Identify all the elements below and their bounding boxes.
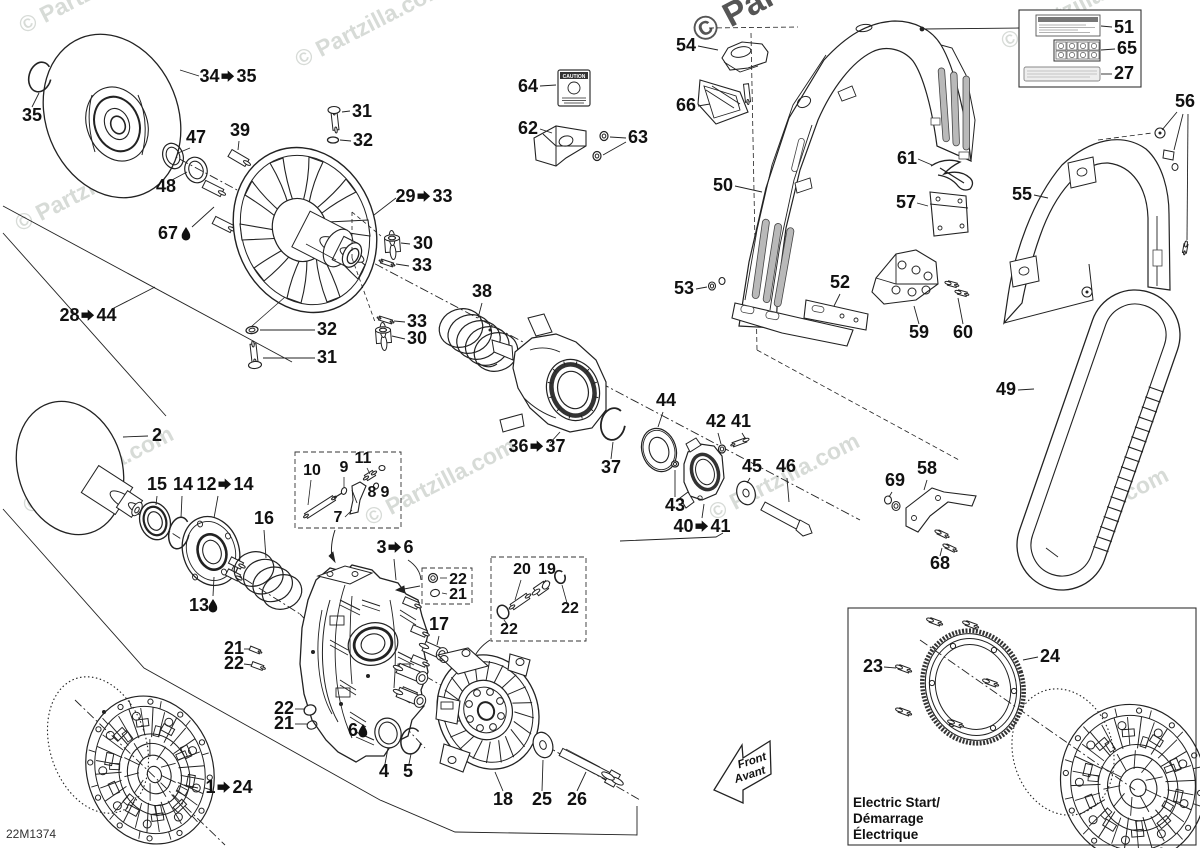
svg-text:30: 30 xyxy=(407,328,427,348)
svg-text:49: 49 xyxy=(996,379,1016,399)
svg-text:51: 51 xyxy=(1114,17,1134,37)
svg-text:64: 64 xyxy=(518,76,538,96)
svg-text:Démarrage: Démarrage xyxy=(853,811,924,826)
svg-text:9: 9 xyxy=(381,484,390,501)
svg-text:35: 35 xyxy=(237,66,257,86)
svg-text:25: 25 xyxy=(532,789,552,809)
svg-text:1: 1 xyxy=(206,777,216,797)
svg-text:21: 21 xyxy=(274,713,294,733)
svg-text:62: 62 xyxy=(518,118,538,138)
svg-text:56: 56 xyxy=(1175,91,1195,111)
svg-text:32: 32 xyxy=(353,130,373,150)
svg-text:39: 39 xyxy=(230,120,250,140)
svg-text:11: 11 xyxy=(355,450,372,467)
svg-text:32: 32 xyxy=(317,319,337,339)
svg-text:24: 24 xyxy=(1040,646,1060,666)
svg-text:6: 6 xyxy=(404,537,414,557)
svg-text:43: 43 xyxy=(665,495,685,515)
svg-text:5: 5 xyxy=(403,761,413,781)
svg-text:14: 14 xyxy=(234,474,254,494)
svg-text:6: 6 xyxy=(348,720,358,740)
svg-text:13: 13 xyxy=(189,595,209,615)
svg-text:27: 27 xyxy=(1114,63,1134,83)
svg-text:9: 9 xyxy=(340,459,349,476)
svg-text:69: 69 xyxy=(885,470,905,490)
svg-text:58: 58 xyxy=(917,458,937,478)
svg-text:17: 17 xyxy=(429,614,449,634)
svg-text:54: 54 xyxy=(676,35,696,55)
svg-text:29: 29 xyxy=(396,186,416,206)
svg-text:30: 30 xyxy=(413,233,433,253)
svg-text:33: 33 xyxy=(433,186,453,206)
svg-text:28: 28 xyxy=(60,305,80,325)
svg-text:34: 34 xyxy=(200,66,220,86)
svg-text:59: 59 xyxy=(909,322,929,342)
svg-text:50: 50 xyxy=(713,175,733,195)
svg-text:35: 35 xyxy=(22,105,42,125)
svg-text:57: 57 xyxy=(896,192,916,212)
svg-text:22: 22 xyxy=(561,600,579,617)
svg-text:12: 12 xyxy=(197,474,217,494)
svg-text:53: 53 xyxy=(674,278,694,298)
svg-text:33: 33 xyxy=(412,255,432,275)
svg-text:42: 42 xyxy=(706,411,726,431)
svg-text:52: 52 xyxy=(830,272,850,292)
svg-text:31: 31 xyxy=(352,101,372,121)
svg-text:14: 14 xyxy=(173,474,193,494)
svg-text:46: 46 xyxy=(776,456,796,476)
svg-text:41: 41 xyxy=(711,516,731,536)
svg-text:Electric Start/: Electric Start/ xyxy=(853,795,940,810)
svg-text:Électrique: Électrique xyxy=(853,827,919,842)
svg-text:18: 18 xyxy=(493,789,513,809)
svg-text:36: 36 xyxy=(509,436,529,456)
svg-text:65: 65 xyxy=(1117,38,1137,58)
svg-text:24: 24 xyxy=(233,777,253,797)
svg-text:CAUTION: CAUTION xyxy=(563,74,586,80)
svg-text:7: 7 xyxy=(334,509,343,526)
svg-text:38: 38 xyxy=(472,281,492,301)
svg-text:3: 3 xyxy=(377,537,387,557)
svg-text:22M1374: 22M1374 xyxy=(6,827,56,841)
svg-text:23: 23 xyxy=(863,656,883,676)
svg-text:26: 26 xyxy=(567,789,587,809)
svg-text:55: 55 xyxy=(1012,184,1032,204)
svg-text:44: 44 xyxy=(656,390,676,410)
svg-text:16: 16 xyxy=(254,508,274,528)
svg-text:31: 31 xyxy=(317,347,337,367)
svg-text:20: 20 xyxy=(513,561,531,578)
svg-text:8: 8 xyxy=(368,484,377,501)
svg-text:41: 41 xyxy=(731,411,751,431)
svg-text:47: 47 xyxy=(186,127,206,147)
svg-text:19: 19 xyxy=(538,561,556,578)
svg-text:40: 40 xyxy=(674,516,694,536)
svg-text:66: 66 xyxy=(676,95,696,115)
svg-text:10: 10 xyxy=(303,462,321,479)
svg-text:15: 15 xyxy=(147,474,167,494)
svg-text:61: 61 xyxy=(897,148,917,168)
svg-text:67: 67 xyxy=(158,223,178,243)
svg-text:22: 22 xyxy=(224,653,244,673)
svg-text:2: 2 xyxy=(152,425,162,445)
svg-text:37: 37 xyxy=(601,457,621,477)
svg-text:4: 4 xyxy=(379,761,389,781)
svg-text:37: 37 xyxy=(546,436,566,456)
svg-text:22: 22 xyxy=(500,621,518,638)
svg-text:45: 45 xyxy=(742,456,762,476)
svg-text:63: 63 xyxy=(628,127,648,147)
svg-text:60: 60 xyxy=(953,322,973,342)
svg-text:21: 21 xyxy=(449,586,467,603)
